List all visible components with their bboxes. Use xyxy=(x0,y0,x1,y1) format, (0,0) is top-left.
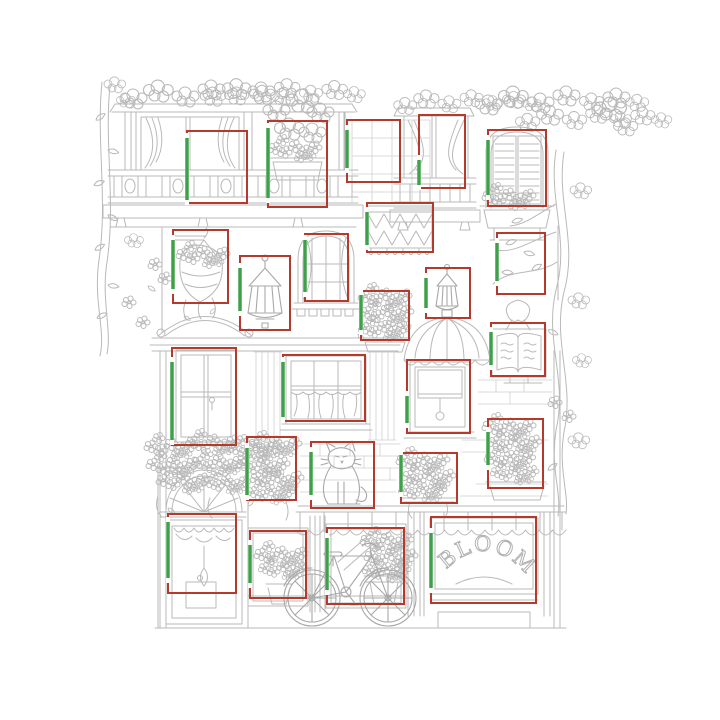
blooms-sign-art: BLOOMS xyxy=(0,0,544,628)
vine-branches-box[interactable] xyxy=(497,233,545,294)
shade-window-box[interactable] xyxy=(407,360,470,433)
arched-window-art xyxy=(292,231,360,316)
shade-window-art xyxy=(404,362,476,438)
flower-box-mid-art xyxy=(396,446,458,518)
balcony-door-left xyxy=(136,112,244,170)
balcony-window-far-right-box[interactable] xyxy=(419,115,465,190)
wall-lantern-right-art xyxy=(436,265,458,318)
cat-ledge-box[interactable] xyxy=(311,442,374,508)
hanging-basket-art xyxy=(173,228,230,322)
balcony-railing-left xyxy=(103,170,363,227)
annotation-overlay xyxy=(168,115,546,604)
shop-window-left-art xyxy=(248,528,308,606)
pilasters xyxy=(254,352,396,440)
line-art-layer: BLOOMS xyxy=(0,0,672,628)
balcony-window-left-box[interactable] xyxy=(187,131,247,205)
center-window-art xyxy=(280,356,372,430)
facade-illustration: BLOOMS xyxy=(0,0,720,720)
tall-window-art xyxy=(176,350,236,442)
coloring-page-canvas: BLOOMS xyxy=(0,0,720,720)
menu-board-art xyxy=(492,300,546,383)
dome-awning xyxy=(404,317,490,365)
wall-lantern-left-art xyxy=(248,255,282,328)
blooms-sign-text: BLOOMS xyxy=(0,0,541,579)
flower-box-right-art xyxy=(482,412,546,500)
cat-illustration xyxy=(321,441,367,504)
rooftop-foliage xyxy=(104,77,672,136)
upper-flower-box-art xyxy=(357,282,414,352)
balcony-planter-bush xyxy=(252,89,344,180)
